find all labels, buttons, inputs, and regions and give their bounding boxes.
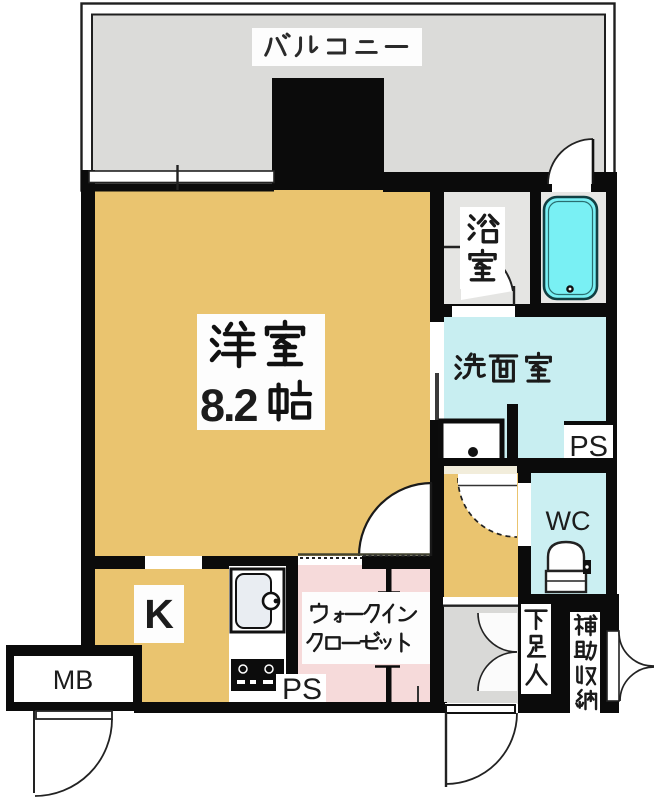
svg-text:WC: WC: [546, 506, 591, 536]
svg-text:K: K: [144, 591, 174, 637]
svg-text:MB: MB: [53, 665, 94, 695]
svg-text:8.2: 8.2: [200, 380, 258, 431]
svg-text:PS: PS: [282, 673, 322, 706]
